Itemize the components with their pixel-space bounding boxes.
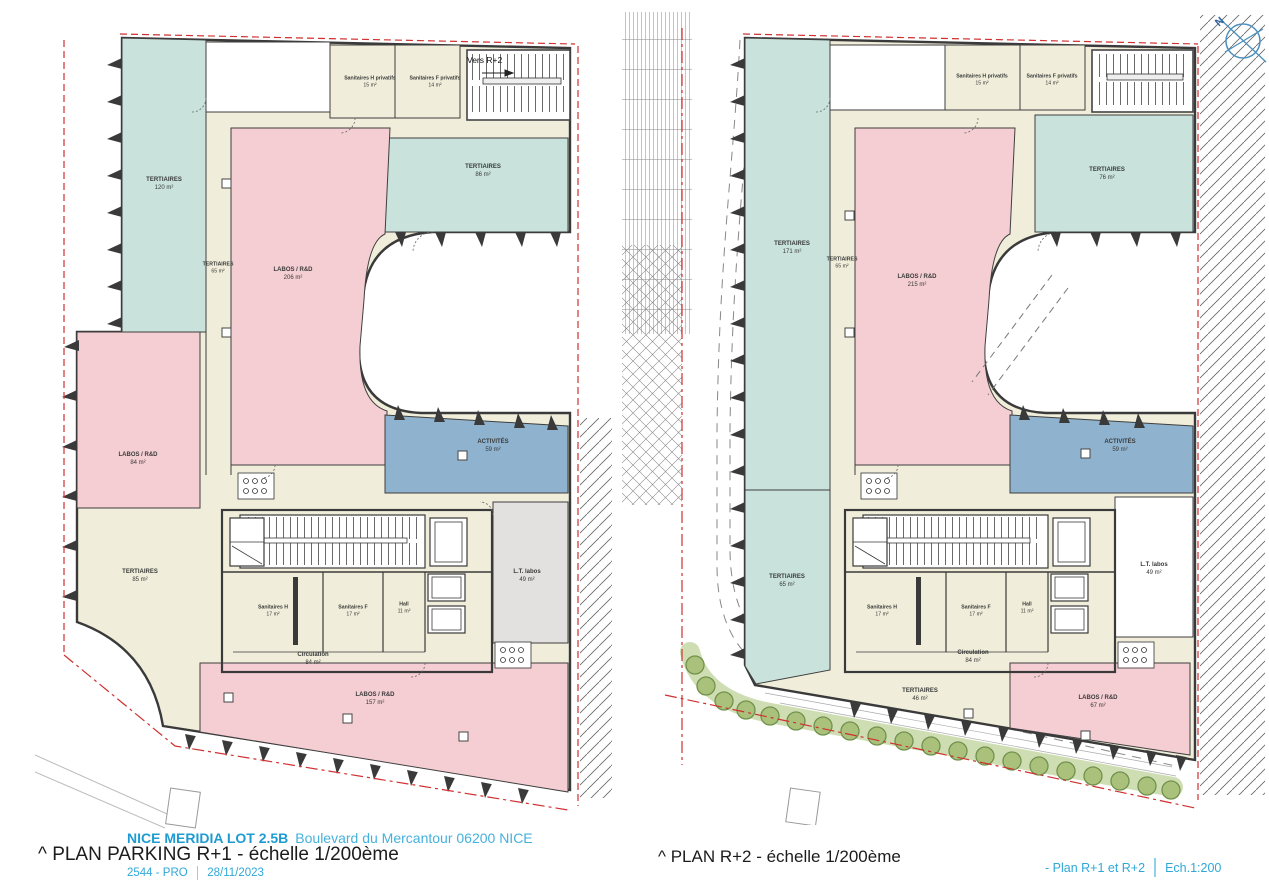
plan-r1-drawing xyxy=(35,10,620,830)
context-hatch xyxy=(1200,15,1265,795)
doc-ref: 2544 - PRO xyxy=(127,867,188,879)
room-label-sanitaires-f-17: Sanitaires F17 m² xyxy=(338,604,367,618)
room-label-lt-labos-49: L.T. labos49 m² xyxy=(513,569,540,585)
room-label-text: Hall xyxy=(398,601,411,608)
room-area-text: 84 m² xyxy=(119,460,158,468)
room-label-text: Circulation xyxy=(957,650,988,658)
room-label-tertiaires-65-strip: TERTIAIRES65 m² xyxy=(827,256,858,270)
room-label-tertiaires-65-bas: TERTIAIRES65 m² xyxy=(769,574,805,590)
room-area-text: 65 m² xyxy=(769,582,805,590)
stair-direction-note: Vers R+2 xyxy=(467,55,502,65)
room-area-text: 17 m² xyxy=(338,611,367,618)
room-label-text: ACTIVITÉS xyxy=(477,439,508,447)
room-area-text: 59 m² xyxy=(1104,447,1135,455)
room-label-text: TERTIAIRES xyxy=(146,177,182,185)
room-label-activites-59: ACTIVITÉS59 m² xyxy=(1104,439,1135,455)
plan-r2-drawing xyxy=(620,10,1269,825)
room-area-text: 14 m² xyxy=(409,82,460,89)
room-label-tertiaires-86: TERTIAIRES86 m² xyxy=(465,164,501,180)
room-label-tertiaires-76: TERTIAIRES76 m² xyxy=(1089,167,1125,183)
room-label-circulation-84: Circulation84 m² xyxy=(297,652,328,668)
room-area-text: 49 m² xyxy=(513,577,540,585)
room-area-text: 171 m² xyxy=(774,249,810,257)
room-label-text: Sanitaires F privatifs xyxy=(1026,73,1077,80)
sheet-label: - Plan R+1 et R+2 xyxy=(1045,861,1145,875)
room-area-text: 11 m² xyxy=(1021,608,1034,615)
room-label-text: TERTIAIRES xyxy=(902,688,938,696)
room-area-text: 86 m² xyxy=(465,172,501,180)
room-label-circulation-84: Circulation84 m² xyxy=(957,650,988,666)
room-label-text: Hall xyxy=(1021,601,1034,608)
room-label-text: TERTIAIRES xyxy=(465,164,501,172)
room-label-lt-labos-49: L.T. labos49 m² xyxy=(1140,562,1167,578)
room-area-text: 120 m² xyxy=(146,185,182,193)
drawing-sheet: TERTIAIRES120 m² Sanitaires H privatifs1… xyxy=(0,0,1269,886)
room-label-text: L.T. labos xyxy=(513,569,540,577)
room-label-labos-215: LABOS / R&D215 m² xyxy=(898,274,937,290)
room-label-text: L.T. labos xyxy=(1140,562,1167,570)
document-ref-line: 2544 - PRO28/11/2023 xyxy=(127,866,264,880)
room-area-text: 65 m² xyxy=(203,268,234,275)
room-label-hall-11: Hall11 m² xyxy=(398,601,411,615)
room-label-labos-84: LABOS / R&D84 m² xyxy=(119,452,158,468)
room-label-text: LABOS / R&D xyxy=(356,692,395,700)
room-area-text: 215 m² xyxy=(898,282,937,290)
room-label-hall-11: Hall11 m² xyxy=(1021,601,1034,615)
right-plan-title: ^ PLAN R+2 - échelle 1/200ème xyxy=(658,847,901,867)
room-label-text: LABOS / R&D xyxy=(119,452,158,460)
room-label-tertiaires-65: TERTIAIRES65 m² xyxy=(203,261,234,275)
room-label-text: Sanitaires F xyxy=(338,604,367,611)
room-label-text: LABOS / R&D xyxy=(274,267,313,275)
room-label-tertiaires-171: TERTIAIRES171 m² xyxy=(774,241,810,257)
room-label-sanitaires-f-priv: Sanitaires F privatifs14 m² xyxy=(1026,73,1077,87)
room-label-text: Sanitaires F privatifs xyxy=(409,75,460,82)
room-label-sanitaires-h-priv: Sanitaires H privatifs15 m² xyxy=(956,73,1008,87)
doc-date: 28/11/2023 xyxy=(207,867,264,879)
room-label-text: TERTIAIRES xyxy=(203,261,234,268)
room-label-text: ACTIVITÉS xyxy=(1104,439,1135,447)
room-area-text: 59 m² xyxy=(477,447,508,455)
room-area-text: 157 m² xyxy=(356,700,395,708)
road-lines xyxy=(786,788,820,825)
room-label-text: TERTIAIRES xyxy=(122,569,158,577)
room-area-text: 65 m² xyxy=(827,263,858,270)
room-label-text: Sanitaires F xyxy=(961,604,990,611)
room-area-text: 76 m² xyxy=(1089,175,1125,183)
room-area-text: 206 m² xyxy=(274,275,313,283)
room-label-text: TERTIAIRES xyxy=(769,574,805,582)
room-label-sanitaires-h-17: Sanitaires H17 m² xyxy=(258,604,288,618)
room-label-tertiaires-120: TERTIAIRES120 m² xyxy=(146,177,182,193)
room-label-labos-67: LABOS / R&D67 m² xyxy=(1079,695,1118,711)
room-label-labos-206: LABOS / R&D206 m² xyxy=(274,267,313,283)
room-area-text: 15 m² xyxy=(344,82,396,89)
left-plan-title: ^ PLAN PARKING R+1 - échelle 1/200ème xyxy=(38,844,399,866)
room-area-text: 11 m² xyxy=(398,608,411,615)
divider xyxy=(197,866,199,880)
stairs-upper xyxy=(1092,50,1193,112)
plan-r2: TERTIAIRES171 m² Sanitaires H privatifs1… xyxy=(620,10,1269,825)
plan-r1: TERTIAIRES120 m² Sanitaires H privatifs1… xyxy=(35,10,620,830)
road-lines xyxy=(35,755,200,828)
room-label-sanitaires-f-priv: Sanitaires F privatifs14 m² xyxy=(409,75,460,89)
room-label-text: Sanitaires H xyxy=(867,604,897,611)
room-area-text: 14 m² xyxy=(1026,80,1077,87)
room-area-text: 67 m² xyxy=(1079,703,1118,711)
room-area-text: 85 m² xyxy=(122,577,158,585)
room-label-text: Sanitaires H privatifs xyxy=(344,75,396,82)
room-label-text: TERTIAIRES xyxy=(827,256,858,263)
room-label-activites-59: ACTIVITÉS59 m² xyxy=(477,439,508,455)
room-label-text: Sanitaires H privatifs xyxy=(956,73,1008,80)
room-label-text: TERTIAIRES xyxy=(1089,167,1125,175)
room-label-tertiaires-46: TERTIAIRES46 m² xyxy=(902,688,938,704)
room-label-text: LABOS / R&D xyxy=(898,274,937,282)
room-label-sanitaires-f-17: Sanitaires F17 m² xyxy=(961,604,990,618)
scale-label: Ech.1:200 xyxy=(1165,861,1221,875)
room-label-text: LABOS / R&D xyxy=(1079,695,1118,703)
room-area-text: 84 m² xyxy=(297,660,328,668)
room-area-text: 17 m² xyxy=(961,611,990,618)
context-hatch xyxy=(580,418,612,798)
room-label-sanitaires-h-17: Sanitaires H17 m² xyxy=(867,604,897,618)
room-area-text: 46 m² xyxy=(902,696,938,704)
room-area-text: 49 m² xyxy=(1140,570,1167,578)
divider xyxy=(1154,858,1156,877)
room-label-labos-157: LABOS / R&D157 m² xyxy=(356,692,395,708)
sheet-info-line: - Plan R+1 et R+2Ech.1:200 xyxy=(1045,858,1221,877)
room-label-text: Sanitaires H xyxy=(258,604,288,611)
room-label-text: Circulation xyxy=(297,652,328,660)
room-area-text: 84 m² xyxy=(957,658,988,666)
room-label-sanitaires-h-priv: Sanitaires H privatifs15 m² xyxy=(344,75,396,89)
room-area-text: 17 m² xyxy=(258,611,288,618)
room-label-tertiaires-85: TERTIAIRES85 m² xyxy=(122,569,158,585)
room-area-text: 17 m² xyxy=(867,611,897,618)
room-area-text: 15 m² xyxy=(956,80,1008,87)
room-label-text: TERTIAIRES xyxy=(774,241,810,249)
